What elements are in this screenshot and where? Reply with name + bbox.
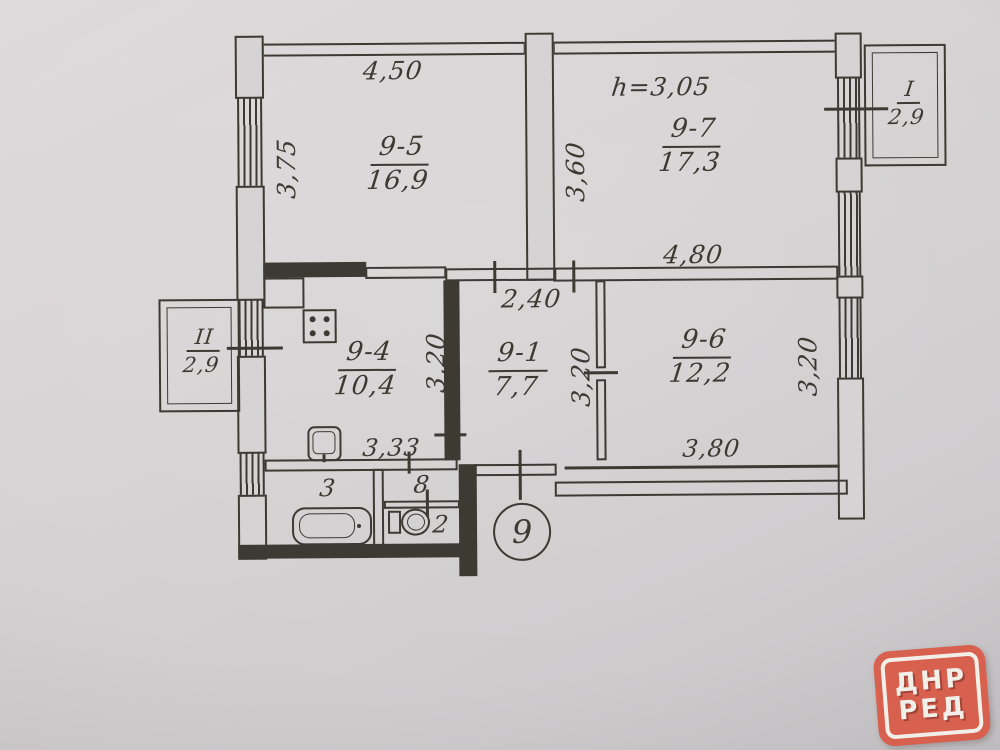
- dim-9-1-height: 3,20: [566, 345, 595, 408]
- wall-top-left-section: [262, 42, 526, 57]
- balcony-number: I: [896, 77, 922, 104]
- wall-entry-threshold: [475, 464, 557, 477]
- wall-8-2: [384, 500, 460, 509]
- wall-9-1-9-6-upper: [595, 280, 606, 368]
- apartment-number-badge: 9: [493, 503, 551, 561]
- door-mark-entry: [519, 450, 522, 500]
- window-left-lower: [240, 453, 265, 496]
- toilet-tank-icon: [388, 511, 401, 534]
- window-room-9-5: [237, 98, 263, 187]
- ceiling-height-label: h=3,05: [610, 72, 712, 102]
- bathroom-number-label: 3: [318, 474, 338, 502]
- dim-9-4-height: 3,20: [421, 331, 450, 394]
- room-number: 9-6: [672, 325, 735, 358]
- window-room-9-6: [838, 297, 862, 378]
- balcony-I-label: I 2,9: [887, 77, 929, 130]
- wall-hall-9-1-top: [445, 268, 556, 282]
- toilet-bowl-inner: [407, 514, 425, 531]
- room-area: 7,7: [485, 373, 547, 403]
- room-number: 9-4: [337, 338, 400, 371]
- room-number: 9-7: [662, 115, 725, 148]
- door-mark-hall-8-cross: [434, 433, 466, 436]
- apartment-number: 9: [512, 513, 533, 551]
- room-number: 9-1: [488, 339, 551, 372]
- dim-9-5-height: 3,75: [272, 137, 301, 200]
- room-number: 9-5: [370, 133, 433, 166]
- logo-line-2: РЕД: [898, 693, 969, 725]
- dim-9-6-width: 3,80: [681, 434, 742, 462]
- wall-kitchen-top: [365, 266, 446, 279]
- bathtub-icon: [292, 507, 372, 546]
- hall-number-label: 8: [412, 470, 432, 498]
- wall-pier-middle: [525, 33, 556, 281]
- dim-9-4-width: 3,33: [361, 434, 422, 462]
- room-area: 16,9: [365, 166, 430, 196]
- dim-9-7-height: 3,60: [561, 140, 590, 203]
- wall-pier: [836, 275, 863, 298]
- wall-pier: [236, 186, 266, 301]
- wall-9-5-bottom: [263, 262, 366, 278]
- dim-9-1-width: 2,40: [500, 284, 563, 313]
- wall-9-6-bottom-line: [565, 465, 840, 469]
- floor-plan: 4,50 3,75 h=3,05 3,60 4,80 2,40 3,20 3,2…: [0, 0, 1000, 750]
- wall-bath-wc: [373, 469, 385, 547]
- wall-9-1-9-6-lower: [596, 379, 607, 460]
- sink-icon: [307, 426, 341, 461]
- wall-pier: [835, 32, 862, 78]
- wall-pier: [235, 36, 264, 99]
- door-mark: [572, 260, 575, 292]
- window-room-9-7: [838, 191, 862, 276]
- room-9-4-label: 9-4 10,4: [332, 338, 401, 402]
- door-mark: [493, 261, 496, 293]
- wall-pier: [837, 377, 865, 519]
- window-balcony-I-door: [837, 77, 861, 158]
- room-area: 10,4: [332, 372, 397, 402]
- balcony-number: II: [186, 325, 222, 352]
- dnr-red-logo: ДНР РЕД: [872, 644, 991, 747]
- wall-top-right-section: [553, 40, 837, 55]
- balcony-II-label: II 2,9: [182, 325, 224, 378]
- wall-corridor-bottom: [555, 480, 848, 497]
- room-9-7-label: 9-7 17,3: [657, 115, 726, 179]
- room-area: 17,3: [657, 148, 722, 178]
- room-9-1-label: 9-1 7,7: [485, 339, 551, 403]
- wall-entry-vertical: [459, 464, 478, 576]
- room-area: 12,2: [667, 359, 732, 389]
- dim-9-7-width: 4,80: [662, 240, 725, 269]
- balcony-area: 2,9: [887, 105, 926, 129]
- balcony-I-tick: [824, 107, 888, 110]
- wall-pier: [835, 157, 862, 192]
- room-9-6-label: 9-6 12,2: [667, 325, 736, 389]
- stove-icon: [303, 309, 337, 343]
- dim-9-6-height: 3,20: [793, 334, 822, 397]
- wall-pier: [237, 356, 267, 454]
- wall-bath-bottom: [238, 543, 465, 559]
- room-9-5-label: 9-5 16,9: [365, 133, 434, 197]
- floor-plan-photo: { "plan": { "apartment_number": "9", "ce…: [0, 0, 1000, 750]
- dim-9-5-width: 4,50: [361, 56, 424, 85]
- wc-number-label: 2: [431, 510, 451, 538]
- balcony-area: 2,9: [182, 353, 221, 377]
- logo-frame: ДНР РЕД: [880, 651, 984, 739]
- vent-duct: [263, 277, 304, 308]
- balcony-II-tick: [227, 347, 283, 350]
